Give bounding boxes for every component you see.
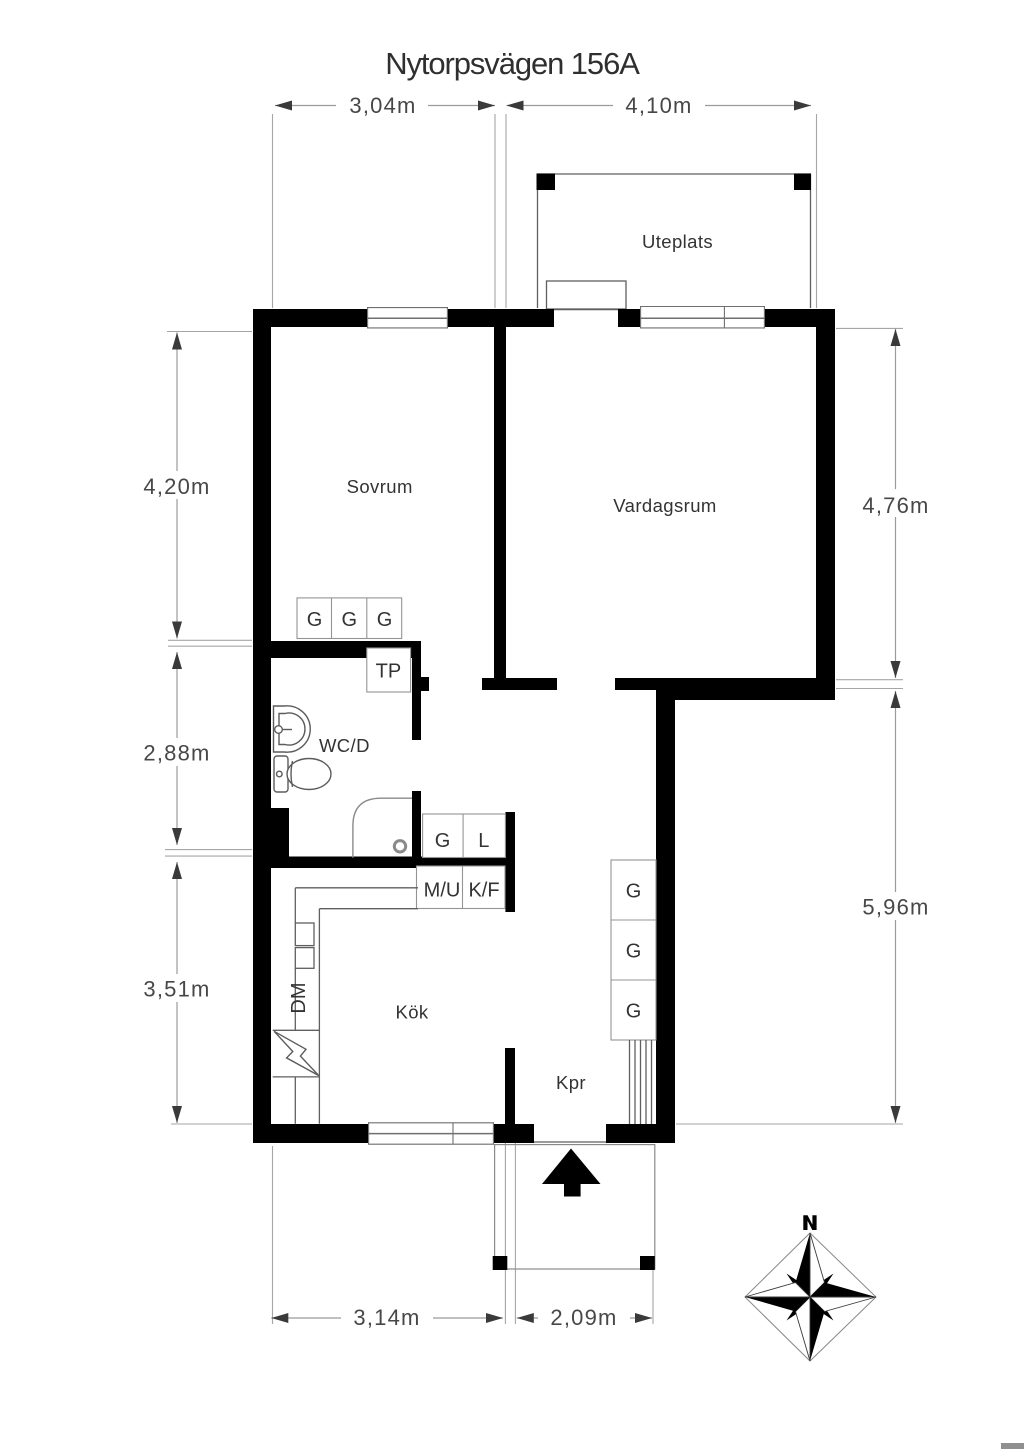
svg-text:G: G — [377, 609, 393, 631]
svg-text:G: G — [626, 941, 642, 963]
svg-text:Kpr: Kpr — [556, 1072, 586, 1093]
svg-text:G: G — [307, 609, 323, 631]
svg-text:3,14m: 3,14m — [353, 1305, 420, 1330]
svg-text:4,10m: 4,10m — [625, 93, 692, 118]
svg-text:Sovrum: Sovrum — [347, 476, 413, 497]
svg-text:TP: TP — [376, 661, 402, 683]
svg-text:5,96m: 5,96m — [862, 895, 929, 920]
svg-text:G: G — [342, 609, 358, 631]
svg-text:M/U: M/U — [424, 880, 461, 902]
svg-text:L: L — [478, 830, 489, 852]
svg-text:Uteplats: Uteplats — [642, 231, 713, 252]
svg-text:Kök: Kök — [395, 1002, 428, 1023]
svg-text:Vardagsrum: Vardagsrum — [613, 495, 716, 516]
svg-text:3,51m: 3,51m — [143, 977, 210, 1002]
svg-text:G: G — [435, 830, 451, 852]
svg-text:DM: DM — [288, 982, 310, 1013]
svg-text:4,20m: 4,20m — [143, 474, 210, 499]
svg-text:G: G — [626, 881, 642, 903]
svg-text:2,88m: 2,88m — [143, 741, 210, 766]
svg-text:3,04m: 3,04m — [349, 93, 416, 118]
svg-text:WC/D: WC/D — [319, 735, 370, 756]
svg-text:Nytorpsvägen 156A: Nytorpsvägen 156A — [385, 46, 640, 81]
svg-text:G: G — [626, 1001, 642, 1023]
svg-text:K/F: K/F — [468, 880, 499, 902]
svg-text:2,09m: 2,09m — [550, 1305, 617, 1330]
svg-text:4,76m: 4,76m — [862, 493, 929, 518]
